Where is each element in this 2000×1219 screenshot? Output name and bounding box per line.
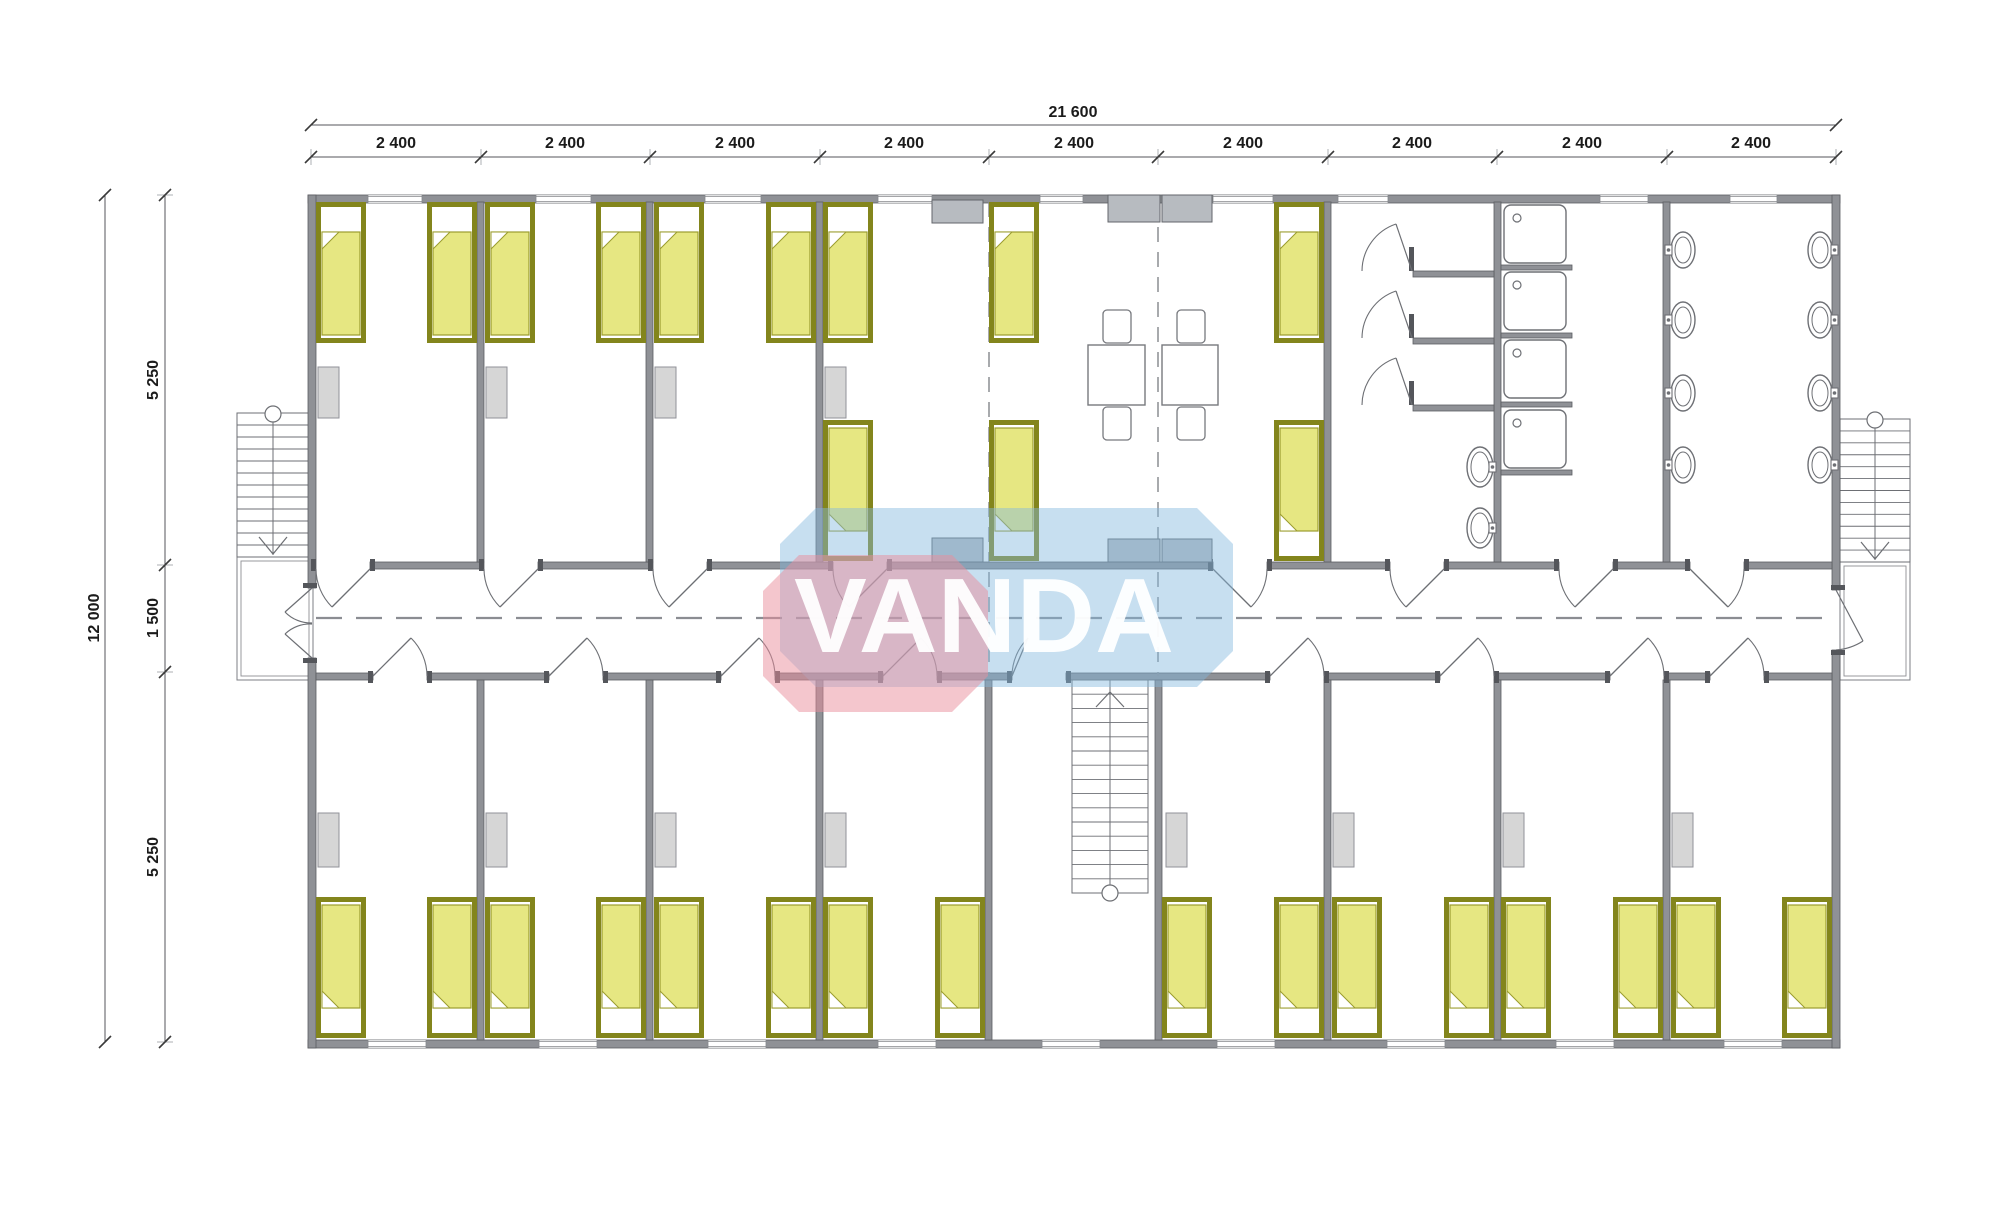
door-leaf <box>1610 638 1648 676</box>
wardrobe <box>1672 813 1693 867</box>
bed-blanket <box>829 905 867 1008</box>
basin-tap-dot <box>1667 318 1671 322</box>
door-leaf <box>1270 638 1308 676</box>
wall <box>1501 333 1572 338</box>
bed <box>657 205 702 341</box>
door-swing <box>1251 569 1267 607</box>
wall <box>1663 680 1670 1040</box>
basin-tap-dot <box>1833 248 1837 252</box>
basin-tap-dot <box>1833 318 1837 322</box>
bed-blanket <box>433 232 471 335</box>
sink-faucet-dot <box>1513 281 1521 289</box>
entrance-landing-inner <box>241 561 309 676</box>
bed <box>488 900 533 1036</box>
bed-blanket <box>1450 905 1488 1008</box>
door-jamb <box>538 559 543 571</box>
chair <box>1177 407 1205 440</box>
door-jamb <box>648 559 653 571</box>
wardrobe <box>655 367 676 418</box>
wall <box>370 562 484 569</box>
sink-faucet-dot <box>1513 419 1521 427</box>
bed <box>599 900 644 1036</box>
bed <box>1277 900 1322 1036</box>
wardrobe <box>825 367 846 418</box>
wall <box>1494 202 1501 562</box>
bed <box>319 205 364 341</box>
sink-faucet-dot <box>1513 349 1521 357</box>
dim-bay-label: 2 400 <box>1731 135 1771 152</box>
door-jamb <box>1605 671 1610 683</box>
bed <box>826 900 871 1036</box>
bed <box>1674 900 1719 1036</box>
bed-blanket <box>829 232 867 335</box>
dim-total-width-label: 21 600 <box>1049 104 1098 121</box>
entrance-landing <box>1840 562 1910 680</box>
bed <box>1504 900 1549 1036</box>
bed <box>599 205 644 341</box>
door-jamb <box>1554 559 1559 571</box>
door-jamb <box>1435 671 1440 683</box>
bed <box>769 900 814 1036</box>
door-leaf <box>1575 569 1613 607</box>
wall <box>1744 562 1832 569</box>
cubicle-door-swing <box>1362 358 1396 405</box>
stair-start-circle <box>1102 885 1118 901</box>
door-jamb <box>1265 671 1270 683</box>
table <box>1088 345 1145 405</box>
bed-blanket <box>602 232 640 335</box>
cubicle-door-swing <box>1362 224 1396 271</box>
bed-blanket <box>941 905 979 1008</box>
bed-blanket <box>1280 232 1318 335</box>
bed-blanket <box>1619 905 1657 1008</box>
entrance-door-swing <box>285 588 312 612</box>
sink-square <box>1504 205 1566 263</box>
dim-bay-label: 2 400 <box>545 135 585 152</box>
bed-blanket <box>602 905 640 1008</box>
wall <box>1444 562 1559 569</box>
door-jamb <box>603 671 608 683</box>
wall <box>1501 402 1572 407</box>
door-jamb <box>1831 585 1845 590</box>
door-jamb <box>311 559 316 571</box>
door-swing <box>411 638 427 676</box>
wall <box>1413 271 1494 277</box>
door-jamb <box>1685 559 1690 571</box>
door-swing <box>1728 569 1744 607</box>
sink-faucet-dot <box>1513 214 1521 222</box>
wall <box>1324 673 1440 680</box>
stair-start-circle <box>265 406 281 422</box>
wardrobe <box>1166 813 1187 867</box>
door-jamb <box>1267 559 1272 571</box>
door-jamb <box>370 559 375 571</box>
wall <box>1324 680 1331 1040</box>
entrance-door-swing <box>285 634 312 658</box>
watermark-logo: VANDA <box>763 508 1233 712</box>
door-jamb <box>1613 559 1618 571</box>
wall <box>985 680 992 1040</box>
door-swing <box>484 569 500 607</box>
bed-blanket <box>322 232 360 335</box>
dim-bay-label: 2 400 <box>1392 135 1432 152</box>
door-leaf <box>1690 569 1728 607</box>
door-leaf <box>500 569 538 607</box>
basin-tap-dot <box>1491 465 1495 469</box>
door-leaf <box>549 638 587 676</box>
door-jamb <box>544 671 549 683</box>
bed-blanket <box>1788 905 1826 1008</box>
wardrobe <box>318 367 339 418</box>
door-leaf <box>669 569 707 607</box>
counter <box>1108 195 1160 222</box>
chair <box>1103 407 1131 440</box>
bed-blanket <box>660 905 698 1008</box>
wardrobe <box>486 367 507 418</box>
wall <box>646 680 653 1040</box>
cubicle-door-jamb <box>1409 314 1414 338</box>
dim-bay-label: 2 400 <box>884 135 924 152</box>
basin-tap-dot <box>1667 248 1671 252</box>
wall <box>308 658 316 1048</box>
wall <box>1664 673 1710 680</box>
wall <box>1267 562 1390 569</box>
door-jamb <box>1494 671 1499 683</box>
bed-blanket <box>660 232 698 335</box>
wall <box>308 195 316 588</box>
dim-bay-label: 2 400 <box>715 135 755 152</box>
wall <box>646 202 653 562</box>
wall <box>316 673 373 680</box>
bed <box>1165 900 1210 1036</box>
bed-blanket <box>1280 428 1318 531</box>
entrance-landing-inner <box>1844 566 1906 676</box>
floor-plan-drawing: 21 600 12 000 5 250 1 500 5 250 2 4002 4… <box>0 0 2000 1219</box>
door-jamb <box>1705 671 1710 683</box>
dim-bay-label: 2 400 <box>1223 135 1263 152</box>
wall <box>1155 680 1162 1040</box>
bed <box>488 205 533 341</box>
bed <box>1335 900 1380 1036</box>
bed-blanket <box>1338 905 1376 1008</box>
wall <box>427 673 549 680</box>
wall <box>1501 470 1572 475</box>
dim-bay-label: 2 400 <box>376 135 416 152</box>
wall <box>1494 673 1610 680</box>
wall <box>603 673 721 680</box>
dim-height-segment-label: 1 500 <box>145 598 162 638</box>
door-jamb <box>1831 650 1845 655</box>
basin-tap-dot <box>1667 391 1671 395</box>
basin-tap-dot <box>1491 526 1495 530</box>
door-jamb <box>427 671 432 683</box>
entrance-landing <box>237 557 313 680</box>
bed <box>1277 205 1322 341</box>
wall <box>477 202 484 562</box>
bed-blanket <box>1507 905 1545 1008</box>
door-jamb <box>479 559 484 571</box>
cubicle-door-jamb <box>1409 247 1414 271</box>
bed-blanket <box>1280 905 1318 1008</box>
wardrobe <box>1503 813 1524 867</box>
wall <box>1494 680 1501 1040</box>
bed-blanket <box>491 232 529 335</box>
door-jamb <box>707 559 712 571</box>
wall <box>816 680 823 1040</box>
chair <box>1103 310 1131 343</box>
bed <box>769 205 814 341</box>
basin-tap-dot <box>1833 391 1837 395</box>
door-swing <box>1308 638 1324 676</box>
bed-blanket <box>1677 905 1715 1008</box>
door-jamb <box>1764 671 1769 683</box>
door-leaf <box>1710 638 1748 676</box>
door-jamb <box>1324 671 1329 683</box>
door-leaf <box>721 638 759 676</box>
wardrobe <box>1333 813 1354 867</box>
bed <box>1616 900 1661 1036</box>
dim-bay-label: 2 400 <box>1054 135 1094 152</box>
wall <box>1413 338 1494 344</box>
wall <box>1764 673 1832 680</box>
wall <box>1324 202 1331 562</box>
dim-height-segment-label: 5 250 <box>145 360 162 400</box>
door-swing <box>1478 638 1494 676</box>
door-swing <box>1559 569 1575 607</box>
door-swing <box>653 569 669 607</box>
wall <box>1832 650 1840 1048</box>
door-swing <box>1748 638 1764 676</box>
basin-tap-dot <box>1667 463 1671 467</box>
wardrobe <box>655 813 676 867</box>
sink-square <box>1504 340 1566 398</box>
wardrobe <box>486 813 507 867</box>
wall <box>1663 202 1670 562</box>
door-swing <box>1648 638 1664 676</box>
wall <box>1413 405 1494 411</box>
bed <box>938 900 983 1036</box>
bed <box>1785 900 1830 1036</box>
wall <box>477 680 484 1040</box>
logo-vanda-text: VANDA <box>794 557 1174 675</box>
cubicle-door-jamb <box>1409 381 1414 405</box>
dim-bay-label: 2 400 <box>1562 135 1602 152</box>
door-leaf <box>1440 638 1478 676</box>
bed <box>319 900 364 1036</box>
dim-total-height-label: 12 000 <box>86 593 103 642</box>
sanitary-fixtures-layer <box>1362 205 1838 548</box>
bed <box>430 900 475 1036</box>
door-leaf <box>332 569 370 607</box>
wall <box>1613 562 1690 569</box>
sink-square <box>1504 410 1566 468</box>
bed <box>657 900 702 1036</box>
cubicle-door-swing <box>1362 291 1396 338</box>
bed <box>992 205 1037 341</box>
bed-blanket <box>772 232 810 335</box>
entrance-door-swing <box>285 612 312 623</box>
bed <box>1447 900 1492 1036</box>
door-jamb <box>303 658 317 663</box>
door-swing <box>587 638 603 676</box>
door-jamb <box>716 671 721 683</box>
wardrobe <box>825 813 846 867</box>
bed-blanket <box>995 232 1033 335</box>
wardrobe <box>318 813 339 867</box>
chair <box>1177 310 1205 343</box>
door-jamb <box>1664 671 1669 683</box>
bed-blanket <box>322 905 360 1008</box>
sink-square <box>1504 272 1566 330</box>
counter <box>932 200 983 223</box>
floor-plan-page: 21 600 12 000 5 250 1 500 5 250 2 4002 4… <box>0 0 2000 1219</box>
bed <box>430 205 475 341</box>
door-jamb <box>303 583 317 588</box>
door-swing <box>1390 569 1406 607</box>
dim-height-segment-label: 5 250 <box>145 837 162 877</box>
bed-blanket <box>1168 905 1206 1008</box>
bed-blanket <box>491 905 529 1008</box>
door-jamb <box>1444 559 1449 571</box>
door-jamb <box>1385 559 1390 571</box>
counter <box>1162 195 1212 222</box>
door-leaf <box>1406 569 1444 607</box>
wall <box>1501 265 1572 270</box>
bed <box>1277 423 1322 559</box>
door-jamb <box>1744 559 1749 571</box>
entrance-door-swing <box>285 624 312 634</box>
bed <box>826 205 871 341</box>
door-jamb <box>368 671 373 683</box>
bed-blanket <box>433 905 471 1008</box>
door-swing <box>316 569 332 607</box>
basin-tap-dot <box>1833 463 1837 467</box>
bed-blanket <box>772 905 810 1008</box>
stair-start-circle <box>1867 412 1883 428</box>
wall <box>538 562 653 569</box>
table <box>1162 345 1218 405</box>
door-leaf <box>373 638 411 676</box>
